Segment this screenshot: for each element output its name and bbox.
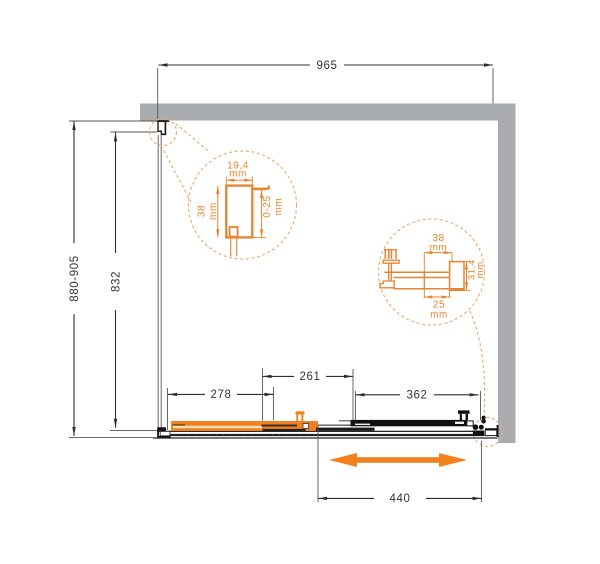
svg-text:mm: mm	[430, 309, 448, 320]
svg-text:0-25: 0-25	[262, 195, 273, 217]
svg-text:965: 965	[317, 60, 338, 72]
svg-text:362: 362	[407, 390, 428, 402]
svg-text:880-905: 880-905	[69, 255, 81, 301]
svg-text:38: 38	[196, 205, 207, 217]
svg-text:mm: mm	[430, 242, 448, 253]
svg-text:278: 278	[211, 389, 232, 401]
svg-text:832: 832	[111, 271, 123, 292]
svg-text:mm: mm	[475, 261, 486, 278]
svg-text:mm: mm	[273, 198, 284, 216]
svg-text:mm: mm	[229, 168, 247, 179]
svg-text:261: 261	[300, 371, 321, 383]
svg-text:mm: mm	[208, 202, 219, 220]
svg-text:440: 440	[390, 493, 411, 505]
